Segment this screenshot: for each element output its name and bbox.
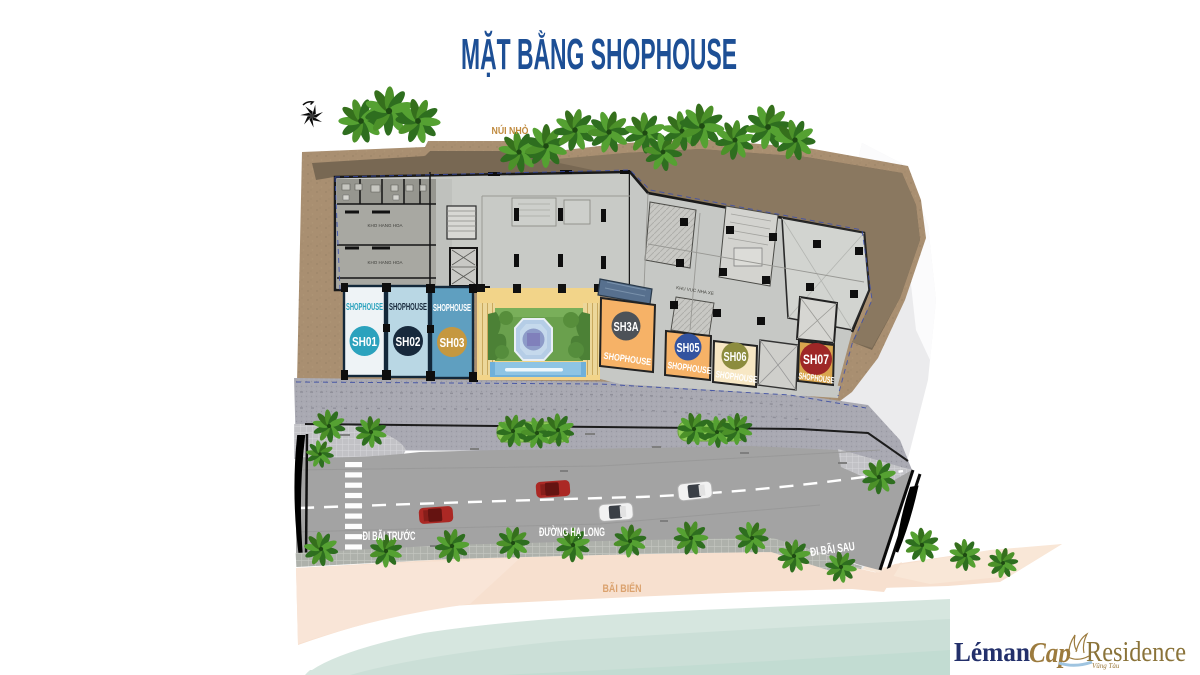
svg-text:SHOPHOUSE: SHOPHOUSE <box>346 302 383 313</box>
svg-text:SH06: SH06 <box>724 350 747 364</box>
svg-text:BÃI BIỂN: BÃI BIỂN <box>603 582 642 595</box>
svg-text:SHOPHOUSE: SHOPHOUSE <box>433 303 471 314</box>
svg-text:SH02: SH02 <box>396 334 421 349</box>
svg-text:KHO HANG HOA: KHO HANG HOA <box>367 223 402 228</box>
svg-text:SH03: SH03 <box>440 335 465 350</box>
svg-text:KHO HANG HOA: KHO HANG HOA <box>367 260 402 265</box>
svg-text:Léman: Léman <box>954 637 1030 667</box>
svg-text:ĐƯỜNG HẠ LONG: ĐƯỜNG HẠ LONG <box>539 524 605 539</box>
svg-text:SH05: SH05 <box>677 341 700 355</box>
svg-text:ĐI BÃI TRƯỚC: ĐI BÃI TRƯỚC <box>363 528 416 543</box>
svg-text:SHOPHOUSE: SHOPHOUSE <box>389 302 427 313</box>
svg-text:SH01: SH01 <box>352 334 377 349</box>
svg-text:Vũng Tàu: Vũng Tàu <box>1092 662 1120 670</box>
svg-text:MẶT BẰNG SHOPHOUSE: MẶT BẰNG SHOPHOUSE <box>461 29 737 79</box>
svg-text:SH07: SH07 <box>803 352 829 367</box>
svg-text:SH3A: SH3A <box>614 319 639 334</box>
svg-text:NÚI NHỎ: NÚI NHỎ <box>492 124 529 137</box>
